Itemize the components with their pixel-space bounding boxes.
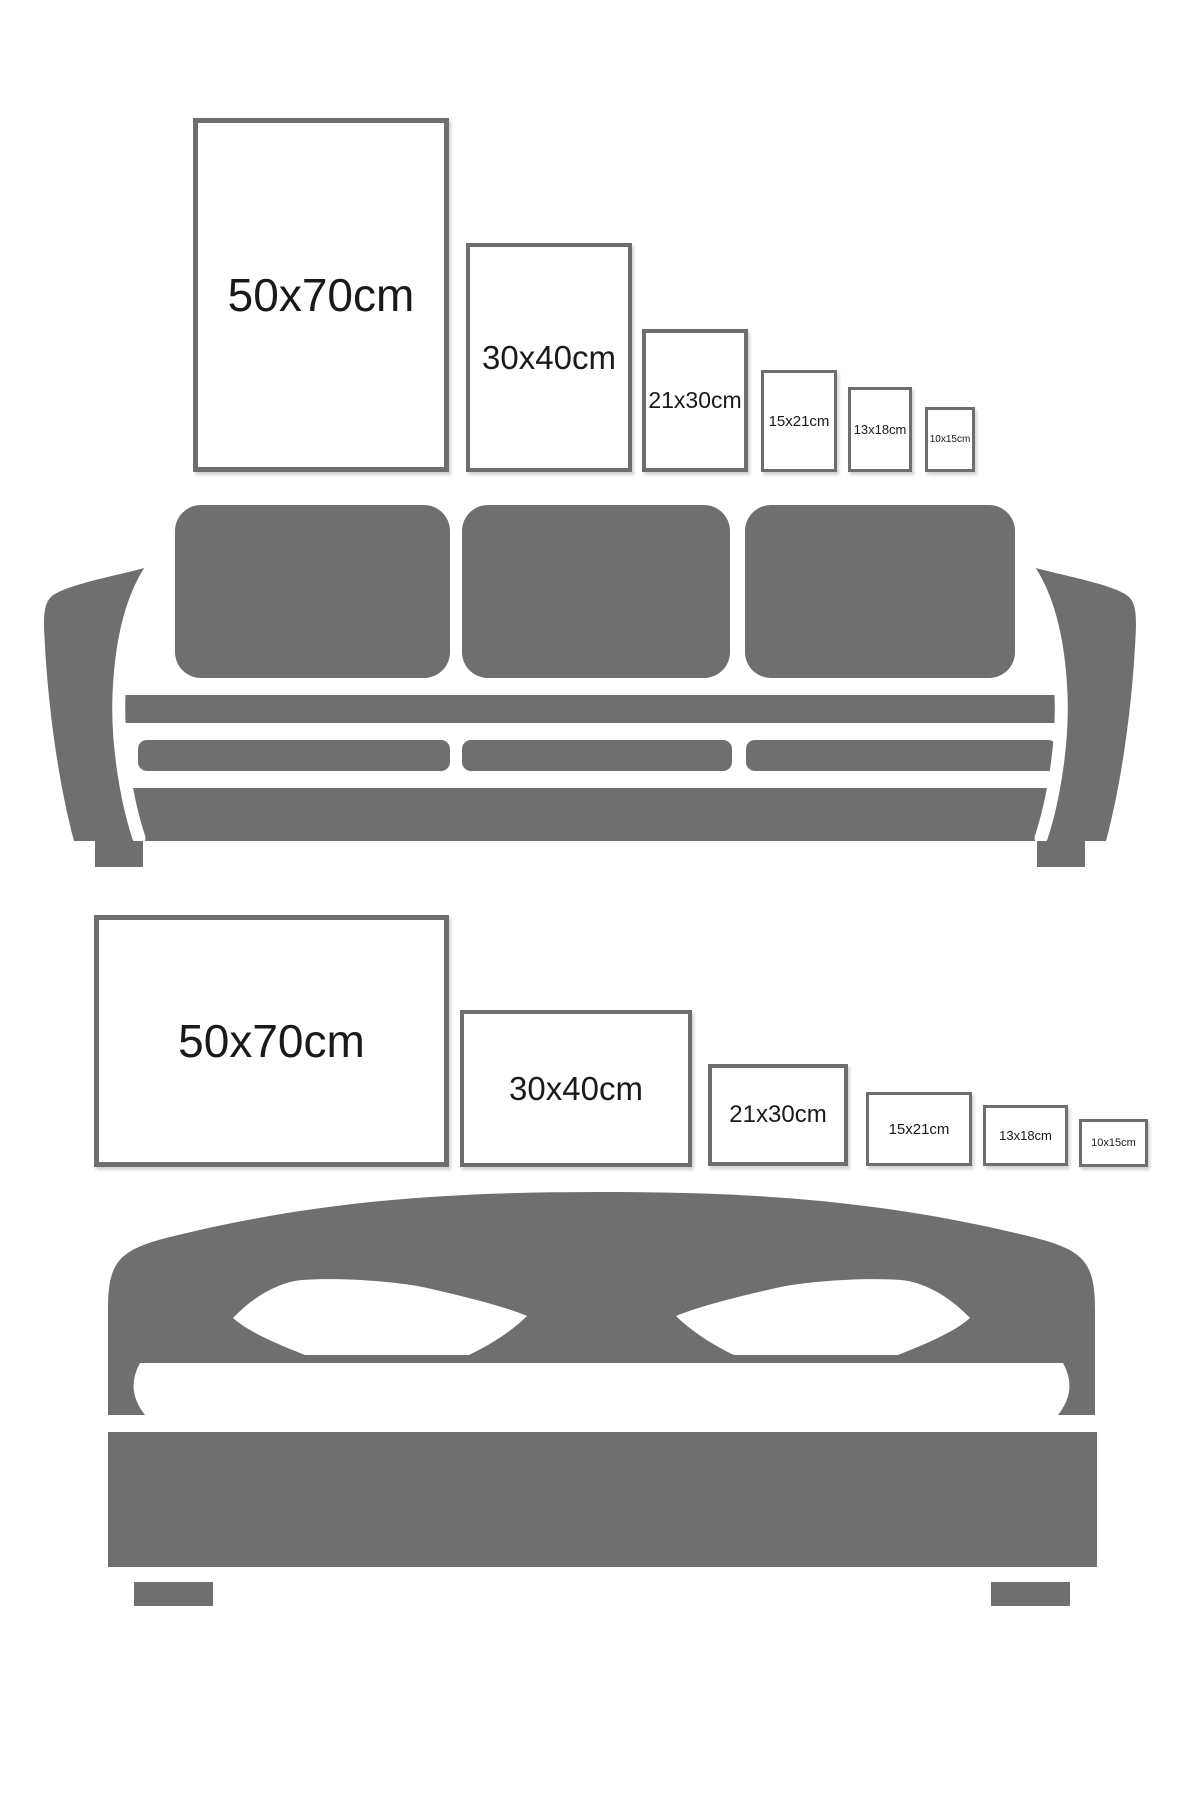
bed-illustration xyxy=(108,1192,1097,1606)
size-frame-50x70-portrait: 50x70cm xyxy=(193,118,449,472)
sofa-illustration xyxy=(44,505,1136,867)
size-label: 30x40cm xyxy=(482,341,616,374)
size-label: 15x21cm xyxy=(769,414,830,429)
size-frame-10x15-landscape: 10x15cm xyxy=(1079,1119,1148,1167)
size-frame-10x15-portrait: 10x15cm xyxy=(925,407,975,472)
size-frame-21x30-landscape: 21x30cm xyxy=(708,1064,848,1166)
size-label: 21x30cm xyxy=(648,389,741,412)
size-frame-13x18-portrait: 13x18cm xyxy=(848,387,912,472)
size-frame-13x18-landscape: 13x18cm xyxy=(983,1105,1068,1166)
size-frame-15x21-portrait: 15x21cm xyxy=(761,370,837,472)
size-label: 50x70cm xyxy=(228,272,415,318)
size-frame-30x40-portrait: 30x40cm xyxy=(466,243,632,472)
size-label: 30x40cm xyxy=(509,1072,643,1105)
size-frame-30x40-landscape: 30x40cm xyxy=(460,1010,692,1167)
size-frame-21x30-portrait: 21x30cm xyxy=(642,329,748,472)
size-label: 10x15cm xyxy=(930,435,971,445)
size-label: 21x30cm xyxy=(729,1103,826,1127)
size-frame-15x21-landscape: 15x21cm xyxy=(866,1092,972,1166)
size-label: 10x15cm xyxy=(1091,1138,1136,1149)
poster-size-comparison-infographic: 50x70cm 30x40cm 21x30cm 15x21cm 13x18cm … xyxy=(0,0,1200,1800)
size-label: 13x18cm xyxy=(854,423,907,436)
size-label: 50x70cm xyxy=(178,1018,365,1064)
size-frame-50x70-landscape: 50x70cm xyxy=(94,915,449,1167)
size-label: 13x18cm xyxy=(999,1129,1052,1142)
size-label: 15x21cm xyxy=(889,1122,950,1137)
